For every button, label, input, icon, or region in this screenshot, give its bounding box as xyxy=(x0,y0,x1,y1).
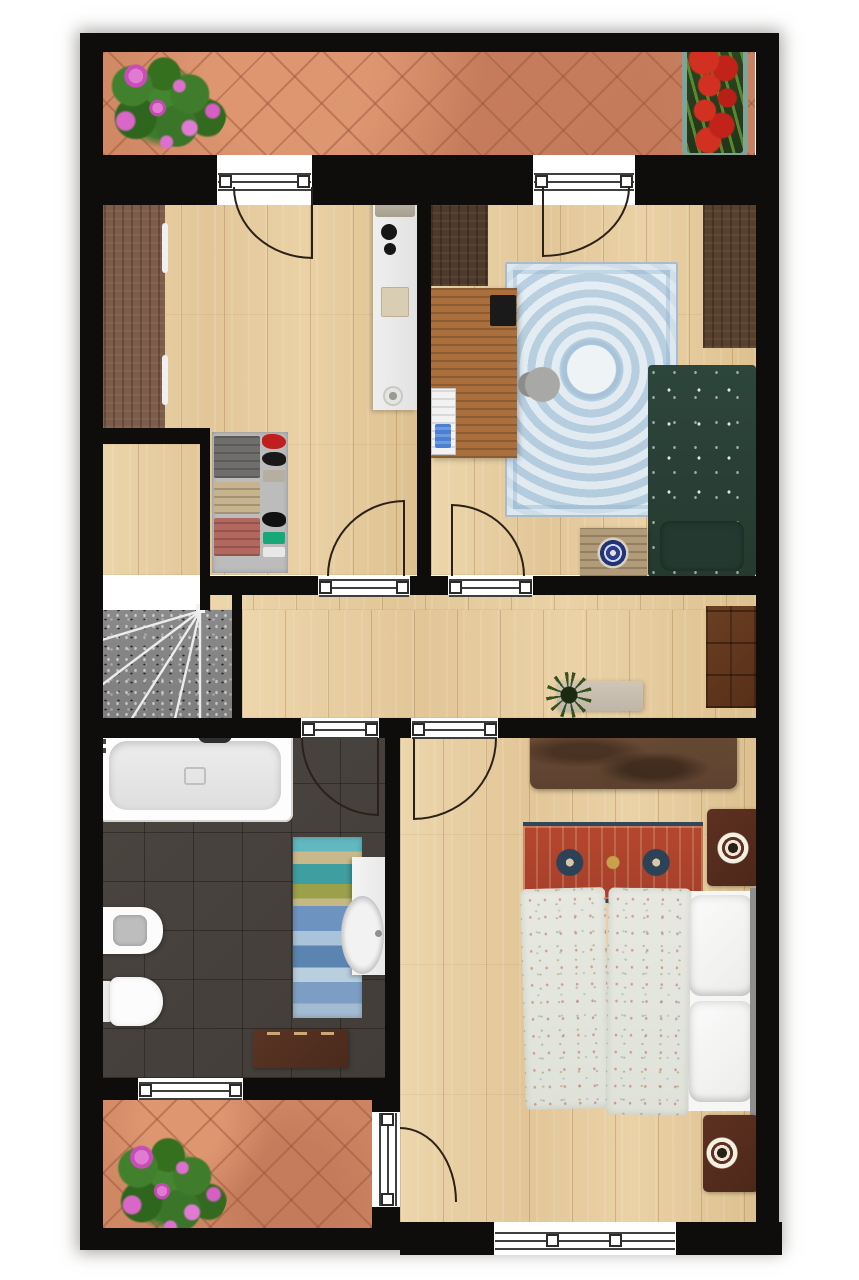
potted-plant xyxy=(546,672,592,718)
wall-terrace-bottom xyxy=(80,1228,400,1250)
window-mullion xyxy=(609,1234,622,1247)
door-leaf-bedroom-small xyxy=(451,504,453,576)
bathroom-window xyxy=(138,1078,243,1100)
wardrobe xyxy=(95,185,165,428)
wardrobe-right xyxy=(703,198,756,348)
double-bed xyxy=(523,888,756,1115)
cabinet-handle xyxy=(267,1032,280,1035)
master-wardrobe xyxy=(530,731,737,789)
wardrobe-handle xyxy=(162,355,168,405)
wall-bath-bedroom xyxy=(385,718,400,1100)
threshold-jamb xyxy=(319,581,332,594)
door-leaf-room-top-left xyxy=(403,500,405,576)
wall-stairs-top xyxy=(80,428,210,444)
pink-flower-bush-bottom xyxy=(108,1136,228,1242)
cabinet-handle xyxy=(321,1032,334,1035)
wall-terrace-top xyxy=(80,33,777,52)
folded-item-gray xyxy=(263,470,285,482)
radiator-towel xyxy=(435,424,451,448)
wardrobe-handle xyxy=(162,223,168,273)
desk-disc xyxy=(383,386,403,406)
threshold-bedroom-master xyxy=(411,718,498,738)
bath-cabinet xyxy=(253,1030,348,1068)
master-bedroom-window xyxy=(494,1222,676,1255)
window-rails xyxy=(495,1232,675,1250)
folded-item-green xyxy=(263,532,285,544)
folded-clothes-beige xyxy=(214,482,260,514)
threshold-jamb xyxy=(449,581,462,594)
folded-clothes-rose xyxy=(214,518,260,556)
hallway-floor-upper xyxy=(210,595,756,610)
threshold-jamb xyxy=(396,581,409,594)
hall-cabinet xyxy=(706,606,756,708)
door-leaf-bedroom-master xyxy=(413,738,415,820)
door-jamb xyxy=(381,1113,394,1126)
shoes-black xyxy=(262,452,286,466)
vanity-faucet xyxy=(375,930,382,937)
door-leaf-balcony-left xyxy=(311,187,313,259)
pillow-bottom xyxy=(689,1001,753,1102)
bathtub xyxy=(98,729,293,822)
nightstand-plate-upper xyxy=(717,832,749,864)
door-jamb xyxy=(381,1193,394,1206)
bidet-basin xyxy=(113,915,147,946)
threshold-jamb xyxy=(484,723,497,736)
threshold-jamb xyxy=(302,723,315,736)
window-jamb xyxy=(219,175,232,188)
folded-item-white xyxy=(263,547,285,557)
cabinet-handle xyxy=(294,1032,307,1035)
door-leaf-balcony-right xyxy=(542,187,544,257)
laptop xyxy=(490,295,516,326)
threshold-jamb xyxy=(519,581,532,594)
folded-clothes-gray xyxy=(214,436,260,478)
threshold-jamb xyxy=(365,723,378,736)
threshold-bathroom xyxy=(301,718,379,738)
pink-flower-bush-top xyxy=(100,56,228,156)
nightstand-plate-lower xyxy=(706,1137,738,1169)
window-mullion xyxy=(546,1234,559,1247)
window-jamb xyxy=(139,1084,152,1097)
door-leaf-bathroom xyxy=(377,738,379,816)
desk-box xyxy=(381,287,409,317)
bathtub-drain xyxy=(184,767,206,785)
desk-bowl-large xyxy=(381,224,397,240)
green-bed-pillow xyxy=(660,521,744,571)
floor-plan xyxy=(0,0,859,1280)
duvet-left xyxy=(520,887,611,1110)
threshold-room-top-left xyxy=(318,576,410,595)
threshold-jamb xyxy=(412,723,425,736)
window-jamb xyxy=(229,1084,242,1097)
wardrobe-top xyxy=(431,198,488,286)
office-chair xyxy=(516,357,564,412)
wall-stairs-right-up xyxy=(200,428,210,610)
terrace-door xyxy=(372,1112,400,1207)
threshold-bedroom-small xyxy=(448,576,533,595)
wall-exterior-left xyxy=(80,33,103,1250)
mandala-plate xyxy=(597,537,629,569)
duvet-right xyxy=(605,887,691,1115)
wall-stairs-right-low xyxy=(232,595,242,723)
hallway-floor xyxy=(242,610,756,718)
toilet xyxy=(97,977,163,1026)
pillow-top xyxy=(689,895,753,996)
stairs-winder-lines xyxy=(95,610,232,723)
bidet xyxy=(97,907,163,954)
shoes-black-2 xyxy=(262,512,286,527)
red-flower-planter xyxy=(682,42,748,158)
desk-bowl-small xyxy=(384,243,396,255)
wall-exterior-right xyxy=(756,33,779,1240)
toilet-bowl xyxy=(110,977,163,1026)
shoes-red xyxy=(262,434,286,449)
window-rails xyxy=(139,1082,242,1100)
stairs-straight-flight xyxy=(95,444,200,610)
wall-room-divider xyxy=(417,185,431,595)
